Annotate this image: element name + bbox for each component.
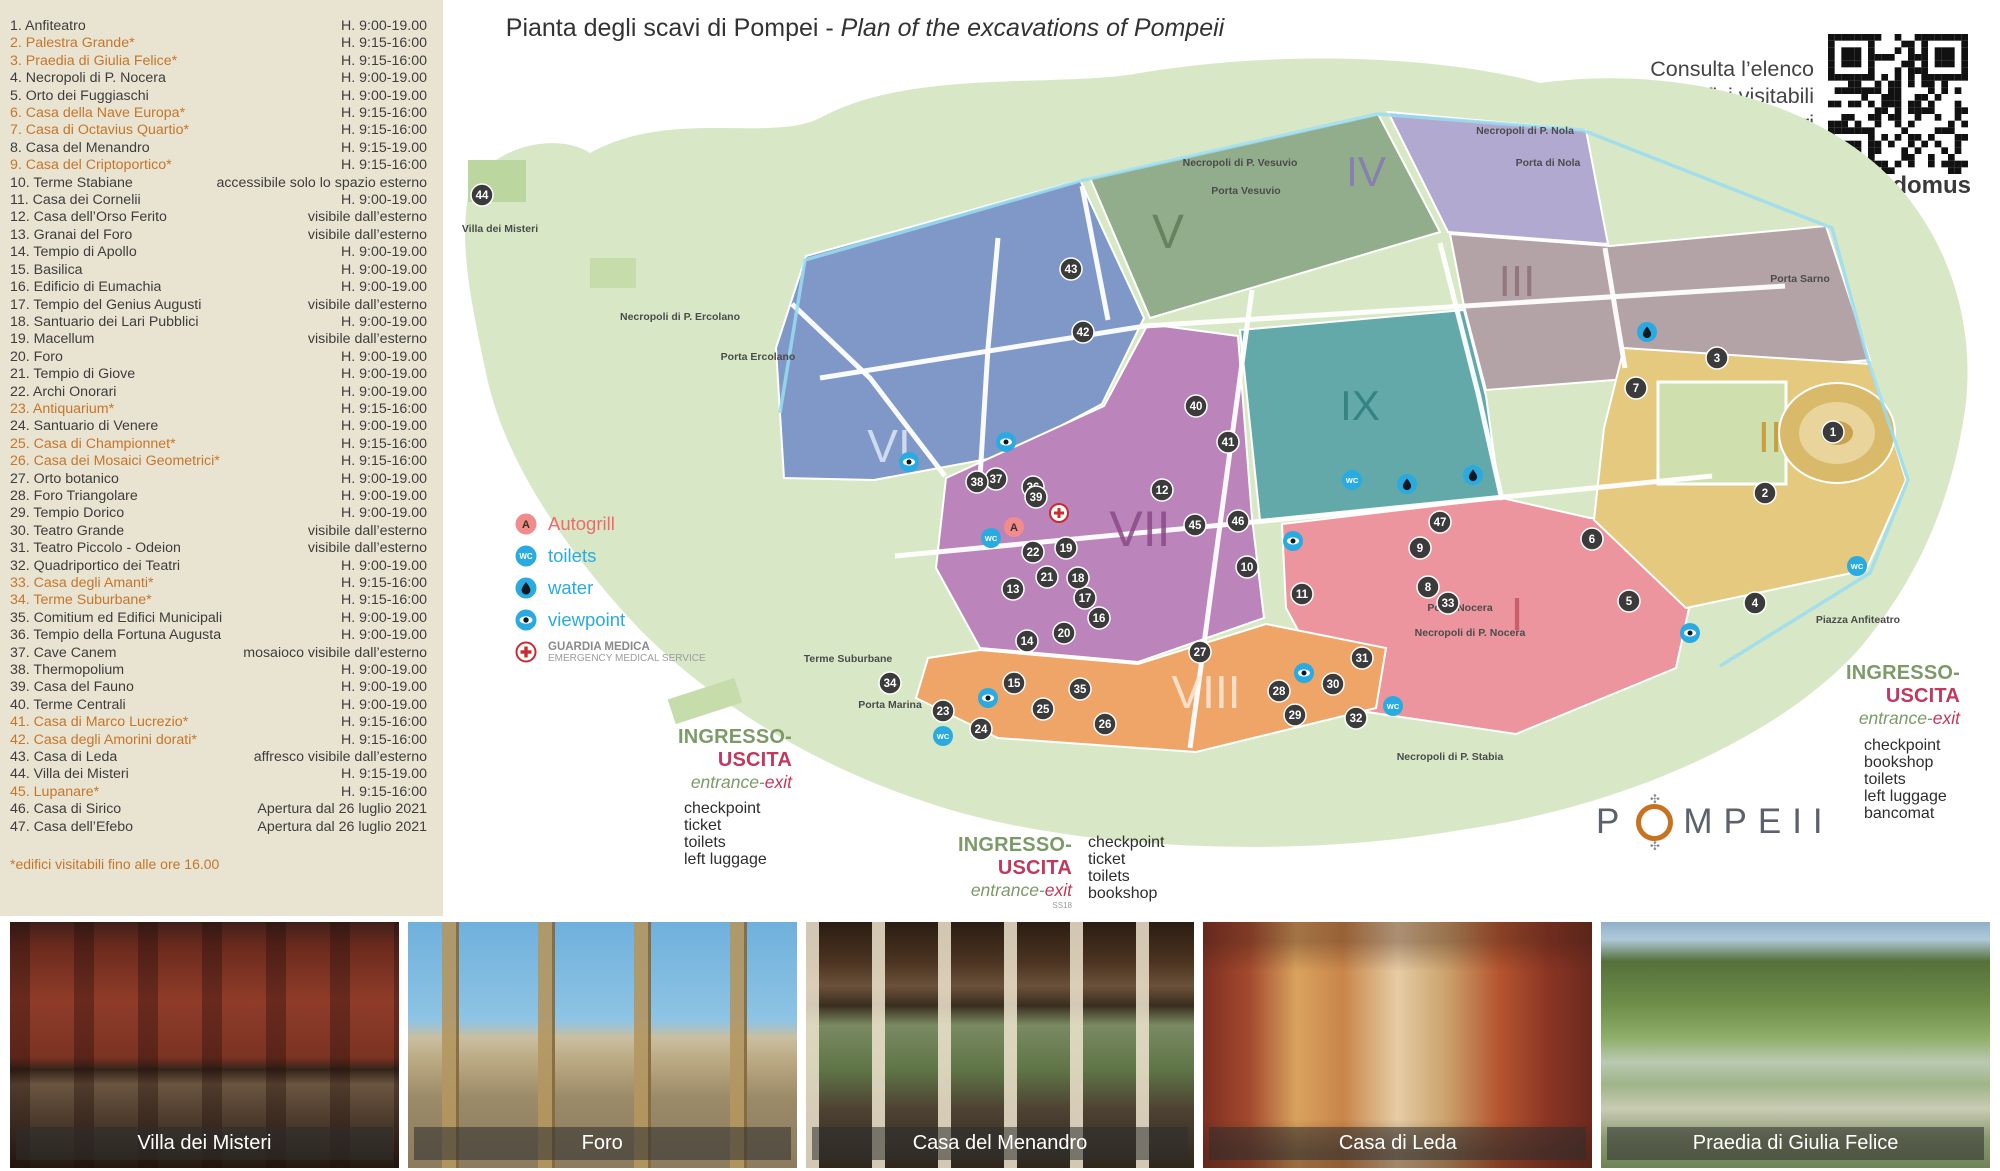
- building-name: 16. Edificio di Eumachia: [10, 279, 161, 296]
- list-item: 25. Casa di Championnet*H. 9:15-16:00: [10, 436, 427, 453]
- svg-text:41: 41: [1222, 437, 1235, 449]
- building-name: 45. Lupanare*: [10, 784, 99, 801]
- svg-text:24: 24: [975, 724, 988, 736]
- building-hours: visibile dall’esterno: [308, 209, 427, 226]
- map-marker-8: 8: [1417, 576, 1439, 598]
- building-hours: visibile dall’esterno: [308, 331, 427, 348]
- map-marker-20: 20: [1053, 622, 1075, 644]
- building-name: 6. Casa della Nave Europa*: [10, 105, 185, 122]
- photo-foro: Foro: [408, 922, 797, 1168]
- viewpoint-icon: [899, 452, 919, 472]
- svg-text:WC: WC: [519, 552, 533, 561]
- svg-text:16: 16: [1093, 613, 1106, 625]
- autogrill-icon: A: [514, 512, 538, 536]
- list-item: 36. Tempio della Fortuna AugustaH. 9:00-…: [10, 627, 427, 644]
- list-item: 47. Casa dell’EfeboApertura dal 26 lugli…: [10, 819, 427, 836]
- building-hours: H. 9:00-19.00: [341, 366, 427, 383]
- map-marker-9: 9: [1409, 537, 1431, 559]
- svg-text:47: 47: [1434, 517, 1447, 529]
- service-item: bancomat: [1864, 805, 1960, 822]
- svg-text:15: 15: [1008, 678, 1021, 690]
- list-item: 12. Casa dell’Orso Feritovisibile dall’e…: [10, 209, 427, 226]
- list-item: 6. Casa della Nave Europa*H. 9:15-16:00: [10, 105, 427, 122]
- service-item: bookshop: [1088, 885, 1165, 902]
- svg-text:37: 37: [990, 474, 1003, 486]
- map-marker-17: 17: [1074, 587, 1096, 609]
- photo-caption: Praedia di Giulia Felice: [1607, 1127, 1984, 1160]
- list-item: 11. Casa dei CorneliiH. 9:00-19.00: [10, 192, 427, 209]
- building-name: 42. Casa degli Amorini dorati*: [10, 732, 197, 749]
- service-item: ticket: [684, 817, 792, 834]
- building-hours: H. 9:15-16:00: [341, 592, 427, 609]
- wc-icon: WC: [1847, 556, 1867, 576]
- building-name: 9. Casa del Criptoportico*: [10, 157, 172, 174]
- legend-label: Autogrill: [548, 513, 615, 535]
- building-hours: H. 9:00-19.00: [341, 279, 427, 296]
- building-hours: H. 9:00-19.00: [341, 505, 427, 522]
- building-hours: mosaioco visibile dall’esterno: [243, 645, 427, 662]
- svg-text:2: 2: [1762, 488, 1768, 500]
- svg-text:23: 23: [937, 706, 950, 718]
- region-numeral-V: V: [1152, 206, 1184, 259]
- svg-text:6: 6: [1589, 534, 1595, 546]
- building-hours: H. 9:15-16:00: [341, 436, 427, 453]
- svg-text:43: 43: [1065, 264, 1078, 276]
- map-label: Necropoli di P. Ercolano: [620, 311, 740, 323]
- list-item: 40. Terme CentraliH. 9:00-19.00: [10, 697, 427, 714]
- list-item: 26. Casa dei Mosaici Geometrici*H. 9:15-…: [10, 453, 427, 470]
- map-label: Necropoli di P. Nocera: [1415, 627, 1526, 639]
- map-marker-46: 46: [1227, 510, 1249, 532]
- list-item: 19. Macellumvisibile dall’esterno: [10, 331, 427, 348]
- building-hours: H. 9:00-19.00: [341, 88, 427, 105]
- map-marker-22: 22: [1022, 541, 1044, 563]
- service-item: toilets: [1864, 771, 1960, 788]
- list-item: 29. Tempio DoricoH. 9:00-19.00: [10, 505, 427, 522]
- building-hours: visibile dall’esterno: [308, 227, 427, 244]
- map-marker-12: 12: [1151, 479, 1173, 501]
- map-label: Porta Vesuvio: [1211, 185, 1280, 197]
- list-item: 44. Villa dei MisteriH. 9:15-19.00: [10, 766, 427, 783]
- building-hours: Apertura dal 26 luglio 2021: [257, 819, 427, 836]
- building-hours: H. 9:15-19.00: [341, 766, 427, 783]
- list-item: 30. Teatro Grandevisibile dall’esterno: [10, 523, 427, 540]
- svg-text:9: 9: [1417, 543, 1423, 555]
- building-hours: H. 9:00-19.00: [341, 70, 427, 87]
- building-name: 21. Tempio di Giove: [10, 366, 135, 383]
- map-label: Porta di Nola: [1516, 157, 1581, 169]
- building-hours: H. 9:00-19.00: [341, 18, 427, 35]
- building-hours: H. 9:15-16:00: [341, 714, 427, 731]
- map-marker-6: 6: [1581, 528, 1603, 550]
- building-name: 20. Foro: [10, 349, 63, 366]
- list-item: 4. Necropoli di P. NoceraH. 9:00-19.00: [10, 70, 427, 87]
- entrance-piazza-anfiteatro: INGRESSO-USCITA entrance-exit checkpoint…: [1788, 662, 1960, 822]
- building-name: 44. Villa dei Misteri: [10, 766, 129, 783]
- title-english: Plan of the excavations of Pompeii: [841, 14, 1225, 42]
- building-name: 4. Necropoli di P. Nocera: [10, 70, 166, 87]
- map-marker-28: 28: [1268, 680, 1290, 702]
- building-name: 33. Casa degli Amanti*: [10, 575, 154, 592]
- svg-text:13: 13: [1007, 584, 1020, 596]
- legend-item: GUARDIA MEDICAEMERGENCY MEDICAL SERVICE: [514, 640, 706, 664]
- svg-text:46: 46: [1232, 516, 1245, 528]
- service-item: ticket: [1088, 851, 1165, 868]
- pompeii-logo: P MPEII: [1596, 802, 1834, 842]
- building-hours: H. 9:00-19.00: [341, 662, 427, 679]
- building-hours: H. 9:15-16:00: [341, 453, 427, 470]
- svg-text:18: 18: [1072, 573, 1085, 585]
- svg-text:17: 17: [1079, 593, 1092, 605]
- region-numeral-IV: IV: [1346, 148, 1386, 195]
- map-marker-45: 45: [1184, 514, 1206, 536]
- legend-label: water: [548, 577, 593, 599]
- map-marker-47: 47: [1429, 511, 1451, 533]
- building-name: 37. Cave Canem: [10, 645, 116, 662]
- list-item: 17. Tempio del Genius Augustivisibile da…: [10, 297, 427, 314]
- map-marker-19: 19: [1055, 537, 1077, 559]
- list-item: 27. Orto botanicoH. 9:00-19.00: [10, 471, 427, 488]
- region-numeral-IX: IX: [1340, 382, 1380, 429]
- building-hours: H. 9:00-19.00: [341, 384, 427, 401]
- svg-text:27: 27: [1194, 647, 1207, 659]
- map-label: Porta Sarno: [1770, 273, 1830, 285]
- region-numeral-VII: VII: [1109, 501, 1170, 557]
- map-marker-25: 25: [1032, 698, 1054, 720]
- building-hours: H. 9:00-19.00: [341, 314, 427, 331]
- building-hours: visibile dall’esterno: [308, 523, 427, 540]
- water-icon: [1637, 322, 1657, 342]
- legend-label: viewpoint: [548, 609, 625, 631]
- svg-text:WC: WC: [985, 534, 998, 543]
- building-hours: H. 9:00-19.00: [341, 349, 427, 366]
- svg-text:38: 38: [971, 477, 984, 489]
- photo-caption: Casa di Leda: [1209, 1127, 1586, 1160]
- building-hours: H. 9:15-19.00: [341, 140, 427, 157]
- map-marker-4: 4: [1744, 592, 1766, 614]
- service-item: checkpoint: [684, 800, 792, 817]
- list-item: 39. Casa del FaunoH. 9:00-19.00: [10, 679, 427, 696]
- services-list: checkpointtickettoiletsleft luggage: [684, 800, 792, 868]
- svg-text:29: 29: [1289, 710, 1302, 722]
- service-item: toilets: [1088, 868, 1165, 885]
- svg-text:25: 25: [1037, 704, 1050, 716]
- building-hours: H. 9:00-19.00: [341, 488, 427, 505]
- legend-label: GUARDIA MEDICA: [548, 641, 706, 653]
- list-item: 13. Granai del Forovisibile dall’esterno: [10, 227, 427, 244]
- service-item: bookshop: [1864, 754, 1960, 771]
- list-item: 10. Terme Stabianeaccessibile solo lo sp…: [10, 175, 427, 192]
- title-italian: Pianta degli scavi di Pompei: [506, 14, 819, 42]
- building-name: 17. Tempio del Genius Augusti: [10, 297, 201, 314]
- list-item: 34. Terme Suburbane*H. 9:15-16:00: [10, 592, 427, 609]
- building-name: 10. Terme Stabiane: [10, 175, 133, 192]
- svg-text:26: 26: [1099, 719, 1112, 731]
- map-marker-24: 24: [970, 718, 992, 740]
- building-hours: H. 9:15-16:00: [341, 122, 427, 139]
- map-marker-32: 32: [1345, 707, 1367, 729]
- list-item: 37. Cave Canemmosaioco visibile dall’est…: [10, 645, 427, 662]
- map-marker-29: 29: [1284, 704, 1306, 726]
- road-label: SS18: [900, 901, 1072, 910]
- svg-text:28: 28: [1273, 686, 1286, 698]
- water-icon: [1463, 465, 1483, 485]
- building-hours: H. 9:15-16:00: [341, 575, 427, 592]
- map-legend: AAutogrillWCtoiletswaterviewpointGUARDIA…: [514, 512, 706, 672]
- building-hours: H. 9:15-16:00: [341, 35, 427, 52]
- building-hours: H. 9:15-16:00: [341, 784, 427, 801]
- map-marker-34: 34: [879, 672, 901, 694]
- map-label: Necropoli di P. Nola: [1476, 125, 1574, 137]
- map-marker-5: 5: [1618, 590, 1640, 612]
- region-numeral-II: II: [1758, 413, 1782, 462]
- building-name: 18. Santuario dei Lari Pubblici: [10, 314, 199, 331]
- building-name: 11. Casa dei Cornelii: [10, 192, 141, 209]
- map-marker-21: 21: [1036, 566, 1058, 588]
- building-name: 8. Casa del Menandro: [10, 140, 150, 157]
- water-icon: [1397, 474, 1417, 494]
- svg-text:WC: WC: [1387, 702, 1400, 711]
- building-hours: H. 9:15-16:00: [341, 53, 427, 70]
- svg-text:12: 12: [1156, 485, 1169, 497]
- photo-caption: Villa dei Misteri: [16, 1127, 393, 1160]
- wc-icon: WC: [933, 726, 953, 746]
- footnote: *edifici visitabili fino alle ore 16.00: [10, 856, 219, 872]
- list-item: 2. Palestra Grande*H. 9:15-16:00: [10, 35, 427, 52]
- building-name: 27. Orto botanico: [10, 471, 119, 488]
- building-hours: Apertura dal 26 luglio 2021: [257, 801, 427, 818]
- service-item: toilets: [684, 834, 792, 851]
- svg-text:A: A: [1010, 522, 1018, 534]
- list-item: 41. Casa di Marco Lucrezio*H. 9:15-16:00: [10, 714, 427, 731]
- building-hours: H. 9:00-19.00: [341, 471, 427, 488]
- list-item: 1. AnfiteatroH. 9:00-19.00: [10, 18, 427, 35]
- photo-caption: Casa del Menandro: [812, 1127, 1189, 1160]
- viewpoint-icon: [978, 688, 998, 708]
- building-hours: H. 9:15-16:00: [341, 157, 427, 174]
- service-item: checkpoint: [1088, 834, 1165, 851]
- building-hours: H. 9:00-19.00: [341, 679, 427, 696]
- building-hours: H. 9:00-19.00: [341, 627, 427, 644]
- svg-text:7: 7: [1633, 383, 1639, 395]
- svg-text:30: 30: [1327, 679, 1340, 691]
- svg-text:45: 45: [1189, 520, 1202, 532]
- wc-icon: WC: [981, 528, 1001, 548]
- services-list: checkpointbookshoptoiletsleft luggageban…: [1864, 737, 1960, 822]
- list-item: 35. Comitium ed Edifici MunicipaliH. 9:0…: [10, 610, 427, 627]
- map-marker-16: 16: [1088, 607, 1110, 629]
- svg-text:14: 14: [1021, 636, 1034, 648]
- svg-text:WC: WC: [1346, 476, 1359, 485]
- map-label: Terme Suburbane: [804, 653, 893, 665]
- map-marker-13: 13: [1002, 578, 1024, 600]
- svg-text:4: 4: [1752, 598, 1759, 610]
- list-item: 24. Santuario di VenereH. 9:00-19.00: [10, 418, 427, 435]
- building-hours: H. 9:00-19.00: [341, 610, 427, 627]
- map-marker-44: 44: [471, 184, 493, 206]
- building-name: 2. Palestra Grande*: [10, 35, 135, 52]
- wc-icon: WC: [1342, 470, 1362, 490]
- building-name: 46. Casa di Sirico: [10, 801, 121, 818]
- photo-strip: Villa dei Misteri Foro Casa del Menandro…: [10, 922, 1990, 1168]
- map-marker-40: 40: [1185, 395, 1207, 417]
- services-list: checkpointtickettoiletsbookshop: [1088, 834, 1165, 902]
- building-hours: H. 9:15-16:00: [341, 401, 427, 418]
- map-marker-42: 42: [1072, 321, 1094, 343]
- autogrill-icon: A: [1004, 517, 1024, 537]
- entrance-piazza-esedra: INGRESSO-USCITA entrance-exit SS18 check…: [900, 834, 1165, 910]
- ingresso-label: INGRESSO-: [678, 726, 792, 748]
- map-marker-14: 14: [1016, 630, 1038, 652]
- list-item: 32. Quadriportico dei TeatriH. 9:00-19.0…: [10, 558, 427, 575]
- list-item: 28. Foro TriangolareH. 9:00-19.00: [10, 488, 427, 505]
- building-hours: H. 9:15-16:00: [341, 732, 427, 749]
- svg-text:22: 22: [1027, 547, 1040, 559]
- building-hours: affresco visibile dall’esterno: [254, 749, 427, 766]
- list-item: 5. Orto dei FuggiaschiH. 9:00-19.00: [10, 88, 427, 105]
- svg-text:34: 34: [884, 678, 897, 690]
- svg-text:19: 19: [1060, 543, 1073, 555]
- svg-text:21: 21: [1041, 572, 1054, 584]
- building-name: 3. Praedia di Giulia Felice*: [10, 53, 177, 70]
- svg-text:10: 10: [1241, 562, 1254, 574]
- map-marker-27: 27: [1189, 641, 1211, 663]
- building-name: 41. Casa di Marco Lucrezio*: [10, 714, 188, 731]
- list-item: 20. ForoH. 9:00-19.00: [10, 349, 427, 366]
- building-hours: visibile dall’esterno: [308, 297, 427, 314]
- svg-text:42: 42: [1077, 327, 1090, 339]
- list-item: 22. Archi OnorariH. 9:00-19.00: [10, 384, 427, 401]
- svg-text:32: 32: [1350, 713, 1363, 725]
- building-name: 12. Casa dell’Orso Ferito: [10, 209, 167, 226]
- viewpoint-icon: [1294, 663, 1314, 683]
- building-hours: H. 9:00-19.00: [341, 418, 427, 435]
- svg-text:33: 33: [1442, 598, 1455, 610]
- legend-item: WCtoilets: [514, 544, 706, 568]
- list-item: 8. Casa del MenandroH. 9:15-19.00: [10, 140, 427, 157]
- map-marker-39: 39: [1025, 486, 1047, 508]
- medic-icon: [1050, 504, 1068, 522]
- list-item: 18. Santuario dei Lari PubbliciH. 9:00-1…: [10, 314, 427, 331]
- list-item: 42. Casa degli Amorini dorati*H. 9:15-16…: [10, 732, 427, 749]
- map-label: Piazza Anfiteatro: [1816, 614, 1900, 626]
- svg-text:WC: WC: [937, 732, 950, 741]
- svg-text:WC: WC: [1851, 562, 1864, 571]
- list-item: 16. Edificio di EumachiaH. 9:00-19.00: [10, 279, 427, 296]
- map-marker-43: 43: [1060, 258, 1082, 280]
- building-name: 40. Terme Centrali: [10, 697, 126, 714]
- building-name: 47. Casa dell’Efebo: [10, 819, 133, 836]
- map-marker-30: 30: [1322, 673, 1344, 695]
- medic-icon: [514, 640, 538, 664]
- map-marker-33: 33: [1437, 592, 1459, 614]
- building-hours: H. 9:00-19.00: [341, 192, 427, 209]
- svg-text:40: 40: [1190, 401, 1203, 413]
- svg-text:39: 39: [1030, 492, 1043, 504]
- svg-text:1: 1: [1830, 427, 1837, 439]
- viewpoint-icon: [514, 608, 538, 632]
- building-list: 1. AnfiteatroH. 9:00-19.002. Palestra Gr…: [10, 18, 427, 836]
- service-item: left luggage: [1864, 788, 1960, 805]
- svg-text:31: 31: [1356, 653, 1369, 665]
- list-item: 46. Casa di SiricoApertura dal 26 luglio…: [10, 801, 427, 818]
- map-marker-3: 3: [1706, 347, 1728, 369]
- map-marker-23: 23: [932, 700, 954, 722]
- svg-text:5: 5: [1626, 596, 1633, 608]
- svg-text:44: 44: [476, 190, 489, 202]
- building-hours: accessibile solo lo spazio esterno: [216, 175, 427, 192]
- list-item: 23. Antiquarium*H. 9:15-16:00: [10, 401, 427, 418]
- map-marker-26: 26: [1094, 713, 1116, 735]
- region-numeral-III: III: [1499, 257, 1536, 306]
- map-marker-18: 18: [1067, 567, 1089, 589]
- map-label: Villa dei Misteri: [462, 223, 538, 235]
- list-item: 9. Casa del Criptoportico*H. 9:15-16:00: [10, 157, 427, 174]
- wc-icon: WC: [1383, 696, 1403, 716]
- photo-caption: Foro: [414, 1127, 791, 1160]
- building-name: 35. Comitium ed Edifici Municipali: [10, 610, 222, 627]
- list-item: 7. Casa di Octavius Quartio*H. 9:15-16:0…: [10, 122, 427, 139]
- svg-text:35: 35: [1074, 684, 1087, 696]
- building-name: 26. Casa dei Mosaici Geometrici*: [10, 453, 220, 470]
- building-name: 22. Archi Onorari: [10, 384, 116, 401]
- svg-text:3: 3: [1714, 353, 1720, 365]
- viewpoint-icon: [1283, 531, 1303, 551]
- legend-label: toilets: [548, 545, 596, 567]
- sidebar-building-list: 1. AnfiteatroH. 9:00-19.002. Palestra Gr…: [0, 0, 443, 916]
- photo-casa-di-leda: Casa di Leda: [1203, 922, 1592, 1168]
- map-marker-7: 7: [1625, 377, 1647, 399]
- building-name: 29. Tempio Dorico: [10, 505, 124, 522]
- building-name: 5. Orto dei Fuggiaschi: [10, 88, 149, 105]
- svg-text:8: 8: [1425, 582, 1432, 594]
- map-marker-15: 15: [1003, 672, 1025, 694]
- building-hours: H. 9:00-19.00: [341, 697, 427, 714]
- map-marker-41: 41: [1217, 431, 1239, 453]
- map-label: Porta Marina: [858, 699, 922, 711]
- wc-icon: WC: [514, 544, 538, 568]
- viewpoint-icon: [996, 432, 1016, 452]
- svg-text:20: 20: [1058, 628, 1071, 640]
- entrance-porta-marina: INGRESSO-USCITA entrance-exit checkpoint…: [622, 726, 792, 868]
- building-name: 15. Basilica: [10, 262, 83, 279]
- map-marker-1: 1: [1822, 421, 1844, 443]
- building-hours: visibile dall’esterno: [308, 540, 427, 557]
- building-hours: H. 9:00-19.00: [341, 244, 427, 261]
- list-item: 14. Tempio di ApolloH. 9:00-19.00: [10, 244, 427, 261]
- building-name: 32. Quadriportico dei Teatri: [10, 558, 180, 575]
- list-item: 45. Lupanare*H. 9:15-16:00: [10, 784, 427, 801]
- building-name: 13. Granai del Foro: [10, 227, 132, 244]
- viewpoint-icon: [1680, 623, 1700, 643]
- map-label: Necropoli di P. Vesuvio: [1183, 157, 1298, 169]
- list-item: 38. ThermopoliumH. 9:00-19.00: [10, 662, 427, 679]
- photo-casa-del-menandro: Casa del Menandro: [806, 922, 1195, 1168]
- building-name: 30. Teatro Grande: [10, 523, 124, 540]
- map-marker-11: 11: [1291, 583, 1313, 605]
- logo-ornate-o: [1636, 804, 1673, 841]
- region-numeral-VIII: VIII: [1171, 666, 1240, 718]
- map-marker-10: 10: [1236, 556, 1258, 578]
- building-name: 34. Terme Suburbane*: [10, 592, 152, 609]
- map-marker-2: 2: [1754, 482, 1776, 504]
- building-hours: H. 9:00-19.00: [341, 558, 427, 575]
- building-name: 24. Santuario di Venere: [10, 418, 158, 435]
- building-name: 25. Casa di Championnet*: [10, 436, 176, 453]
- building-name: 23. Antiquarium*: [10, 401, 114, 418]
- building-name: 7. Casa di Octavius Quartio*: [10, 122, 189, 139]
- building-name: 1. Anfiteatro: [10, 18, 86, 35]
